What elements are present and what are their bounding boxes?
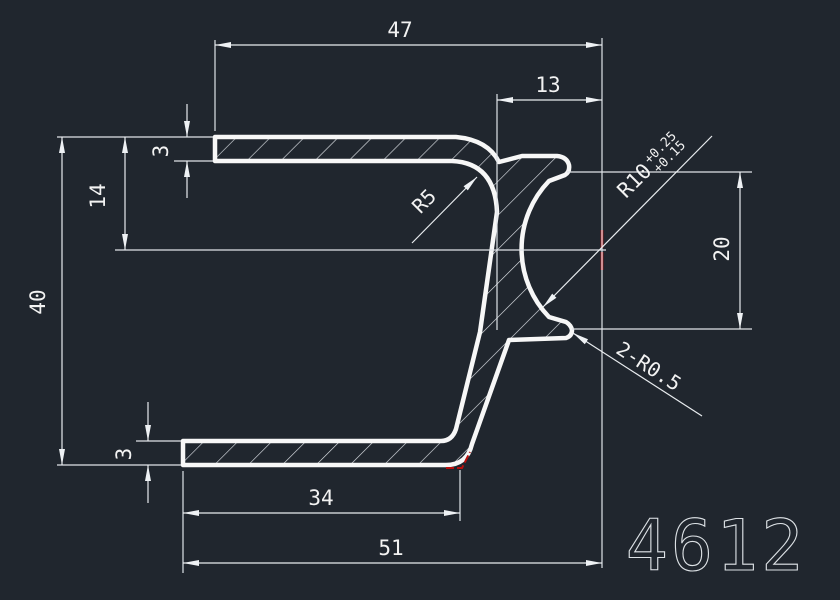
dim-51-label: 51 [378,536,403,560]
part-number[interactable]: 4612 [626,505,807,587]
leader-inner-fillet[interactable]: R5 [407,175,479,243]
dim-34-label: 34 [308,486,333,510]
dim-bottom-thickness[interactable]: 3 [112,402,151,503]
dim-3-bottom-label: 3 [112,448,136,461]
dim-top-thickness[interactable]: 3 [149,104,190,198]
leader-lip-fillets[interactable]: 2-R0.5 [571,330,702,416]
dim-top-flange-width[interactable]: 47 [215,18,602,48]
profile-section[interactable] [183,137,572,465]
dim-lip-offset[interactable]: 13 [497,73,602,103]
dim-47-label: 47 [387,18,412,42]
profile-outline[interactable] [183,137,572,465]
dim-20-label: 20 [710,236,734,261]
drawing-canvas[interactable]: 47 13 3 14 40 3 [0,0,840,600]
dim-13-label: 13 [535,73,560,97]
leader-groove-radius[interactable]: R10 +0.25 +0.15 [541,129,712,309]
dim-groove-opening-height[interactable]: 20 [710,172,743,329]
dim-flange-to-groove-center[interactable]: 14 [86,137,128,250]
dim-bottom-flange-width[interactable]: 51 [183,536,602,566]
dim-14-label: 14 [86,183,110,208]
cad-viewport[interactable]: 47 13 3 14 40 3 [0,0,840,600]
dim-3-top-label: 3 [149,145,173,158]
leader-r5-label: R5 [407,184,441,218]
extension-lines [57,38,752,573]
dim-overall-height[interactable]: 40 [26,137,65,465]
dim-40-label: 40 [26,289,50,314]
dim-bottom-inner-length[interactable]: 34 [183,486,460,516]
leader-r05-label: 2-R0.5 [612,336,686,395]
